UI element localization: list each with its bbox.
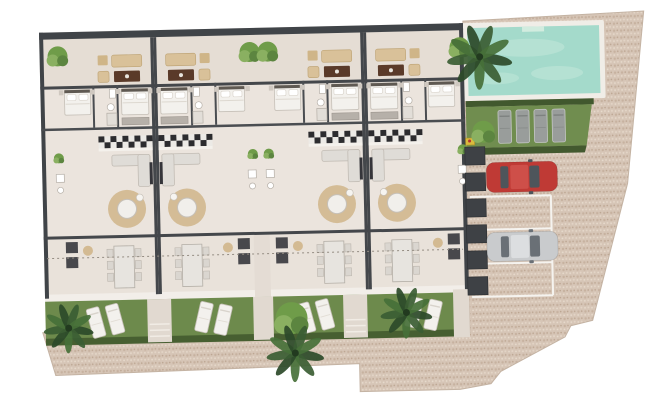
nightstand bbox=[269, 85, 274, 90]
dining-chair bbox=[203, 247, 209, 255]
nightstand bbox=[424, 82, 429, 87]
bed-pillow bbox=[277, 90, 286, 96]
bed-duvet-fold bbox=[162, 101, 187, 102]
kitchen-counter-cell bbox=[176, 141, 182, 147]
kitchen-counter-cell bbox=[200, 140, 206, 146]
nightstand bbox=[148, 88, 153, 93]
dining-chair bbox=[107, 261, 113, 269]
red-car-mirror bbox=[529, 191, 534, 194]
bbq-unit bbox=[238, 253, 250, 264]
floor-plan-canvas bbox=[0, 0, 660, 410]
white-car-rear-glass bbox=[501, 236, 509, 257]
dining-chair bbox=[413, 242, 419, 250]
dining-chair bbox=[317, 268, 323, 276]
dining-chair bbox=[135, 249, 141, 257]
white-car-roof bbox=[511, 235, 530, 258]
garden-path bbox=[453, 289, 470, 337]
wardrobe bbox=[161, 116, 188, 124]
terrace-armchair bbox=[308, 66, 319, 77]
bed-pillow bbox=[79, 94, 88, 100]
kitchen-counter-cell bbox=[374, 130, 380, 136]
kitchen-counter-cell bbox=[170, 135, 176, 141]
kitchen-counter-cell bbox=[356, 130, 362, 136]
dining-chair bbox=[413, 254, 419, 262]
kitchen-counter-cell bbox=[350, 137, 356, 143]
bed bbox=[274, 85, 301, 111]
kitchen-counter-cell bbox=[194, 134, 200, 140]
kitchen-counter-cell bbox=[134, 136, 140, 142]
dining-table bbox=[324, 241, 345, 283]
bed-mattress bbox=[218, 86, 245, 112]
dining-chair bbox=[175, 272, 181, 280]
nightstand bbox=[358, 83, 363, 88]
dining-chair bbox=[345, 256, 351, 264]
dining-chair bbox=[385, 243, 391, 251]
dining-table bbox=[114, 246, 135, 288]
kitchen-counter-cell bbox=[116, 136, 122, 142]
shower bbox=[403, 106, 413, 118]
dining-table bbox=[392, 239, 413, 281]
kitchen-counter-cell bbox=[98, 136, 104, 142]
terrace-sofa bbox=[375, 48, 405, 61]
dining-chair bbox=[317, 244, 323, 252]
tv-unit bbox=[159, 162, 162, 184]
kitchen-counter-cell bbox=[332, 131, 338, 137]
utility-basin bbox=[249, 183, 255, 189]
utility-fixture bbox=[458, 165, 466, 173]
bbq-unit bbox=[448, 233, 460, 244]
kitchen-counter bbox=[98, 135, 152, 148]
kitchen-counter-cell bbox=[326, 137, 332, 143]
terrace-side-table bbox=[307, 50, 317, 60]
storage-box bbox=[466, 199, 486, 217]
nightstand bbox=[188, 87, 193, 92]
kitchen-counter-cell bbox=[320, 137, 326, 143]
wardrobe bbox=[332, 113, 359, 121]
kitchen-counter-cell bbox=[344, 131, 350, 137]
kitchen-counter-cell bbox=[206, 134, 212, 140]
bbq-unit bbox=[66, 242, 78, 253]
bed-mattress bbox=[428, 81, 455, 107]
terrace-armchair bbox=[98, 71, 109, 82]
kitchen-counter-cell bbox=[398, 136, 404, 142]
white-car bbox=[487, 229, 559, 265]
side-passage bbox=[254, 235, 271, 297]
bath-sink bbox=[193, 87, 199, 96]
kitchen-counter-cell bbox=[158, 135, 164, 141]
bed-pillow bbox=[136, 93, 146, 99]
kitchen-counter-cell bbox=[200, 134, 206, 140]
nightstand bbox=[326, 84, 331, 89]
kitchen-counter-cell bbox=[380, 130, 386, 136]
bed bbox=[428, 81, 455, 107]
red-car-windshield bbox=[529, 165, 539, 187]
kitchen-counter-cell bbox=[111, 142, 117, 148]
kitchen-counter-cell bbox=[165, 141, 171, 147]
nightstand bbox=[300, 85, 305, 90]
kitchen-counter-cell bbox=[176, 135, 182, 141]
bed-duvet-fold bbox=[66, 104, 90, 105]
scene-root bbox=[36, 11, 652, 399]
living-sofa-chaise bbox=[138, 154, 151, 186]
dining-chair bbox=[345, 268, 351, 276]
kitchen-counter-cell bbox=[129, 142, 135, 148]
kitchen-counter-cell bbox=[105, 142, 111, 148]
wardrobe bbox=[371, 112, 398, 120]
round-lounge-chair-seat bbox=[117, 199, 136, 218]
tv-unit bbox=[369, 157, 372, 179]
kitchen-counter-cell bbox=[159, 141, 165, 147]
kitchen-counter-cell bbox=[326, 131, 332, 137]
kitchen-counter-cell bbox=[386, 136, 392, 142]
bed bbox=[64, 90, 91, 116]
bath-sink bbox=[319, 84, 325, 93]
nightstand bbox=[245, 86, 250, 91]
bath-sink bbox=[403, 82, 409, 91]
kitchen-counter-cell bbox=[188, 134, 194, 140]
bed-duvet-fold bbox=[220, 100, 244, 101]
kitchen-counter-cell bbox=[164, 135, 170, 141]
dining-chair bbox=[345, 244, 351, 252]
dining-chair bbox=[135, 273, 141, 281]
dining-chair bbox=[413, 266, 419, 274]
bed-pillow bbox=[443, 86, 452, 92]
bed-pillow bbox=[163, 92, 173, 98]
kitchen-counter-cell bbox=[314, 131, 320, 137]
toilet bbox=[195, 102, 202, 109]
bed bbox=[160, 87, 188, 114]
kitchen-counter-cell bbox=[314, 137, 320, 143]
bed-mattress bbox=[160, 87, 188, 114]
bbq-unit bbox=[276, 237, 288, 248]
kitchen-counter-cell bbox=[171, 141, 177, 147]
kitchen-counter-cell bbox=[392, 130, 398, 136]
kitchen-counter-cell bbox=[380, 136, 386, 142]
kitchen-counter-cell bbox=[182, 134, 188, 140]
shower bbox=[317, 108, 327, 120]
bed-headboard bbox=[274, 85, 300, 89]
tv-unit bbox=[149, 162, 152, 184]
kitchen-counter-cell bbox=[146, 135, 152, 141]
bed-mattress bbox=[121, 88, 149, 115]
dining-chair bbox=[175, 248, 181, 256]
kitchen-counter-cell bbox=[135, 142, 141, 148]
nightstand bbox=[90, 90, 95, 95]
bed-pillow bbox=[67, 94, 76, 100]
lawn-lounger-base bbox=[534, 109, 548, 142]
utility-basin bbox=[58, 187, 64, 193]
bed bbox=[331, 84, 359, 111]
bed-headboard bbox=[160, 87, 187, 91]
terrace-side-table bbox=[409, 48, 419, 58]
kitchen-counter-cell bbox=[206, 140, 212, 146]
bed-pillow bbox=[385, 87, 395, 93]
nightstand bbox=[366, 83, 371, 88]
kitchen-counter-cell bbox=[350, 131, 356, 137]
bed-mattress bbox=[64, 90, 91, 116]
nightstand bbox=[398, 83, 403, 88]
kitchen-counter-cell bbox=[147, 141, 153, 147]
round-lounge-chair-side-table bbox=[136, 194, 143, 201]
bed-pillow bbox=[124, 93, 134, 99]
kitchen-counter-cell bbox=[128, 136, 134, 142]
dining-chair bbox=[203, 259, 209, 267]
garden-path bbox=[253, 297, 274, 340]
kitchen-counter-cell bbox=[308, 132, 314, 138]
kitchen-counter-cell bbox=[416, 129, 422, 135]
bed-headboard bbox=[121, 88, 148, 92]
bed-mattress bbox=[370, 83, 398, 110]
round-lounge-chair-side-table bbox=[380, 188, 387, 195]
pool-step bbox=[522, 26, 544, 31]
red-car-roof bbox=[510, 165, 529, 189]
lawn-lounger bbox=[498, 110, 512, 143]
toilet bbox=[405, 97, 412, 104]
nightstand bbox=[214, 87, 219, 92]
nightstand bbox=[59, 90, 64, 95]
storage-box bbox=[465, 173, 485, 191]
terrace-sofa bbox=[166, 53, 196, 66]
dining-chair bbox=[107, 249, 113, 257]
terrace-armchair bbox=[409, 64, 420, 75]
kitchen-counter-cell bbox=[368, 136, 374, 142]
lawn-lounger-base bbox=[552, 109, 566, 142]
kitchen-counter bbox=[368, 129, 422, 142]
bed bbox=[121, 88, 149, 115]
nightstand bbox=[116, 89, 121, 94]
kitchen-counter-cell bbox=[320, 131, 326, 137]
kitchen-counter-cell bbox=[410, 129, 416, 135]
bed-pillow bbox=[175, 92, 185, 98]
bed-pillow bbox=[373, 88, 383, 94]
utility-fixture bbox=[56, 174, 64, 182]
dining-chair bbox=[107, 273, 113, 281]
red-car bbox=[486, 159, 558, 196]
bed-pillow bbox=[289, 89, 298, 95]
white-car-mirror bbox=[529, 260, 534, 263]
site-plan-svg bbox=[0, 0, 660, 410]
lawn-lounger-base bbox=[498, 110, 512, 143]
utility-fixture bbox=[248, 170, 256, 178]
bed-headboard bbox=[218, 86, 244, 90]
bed-pillow bbox=[221, 91, 230, 97]
kitchen-counter-cell bbox=[338, 137, 344, 143]
round-lounge-chair-side-table bbox=[170, 193, 177, 200]
toilet bbox=[317, 99, 324, 106]
living-sofa-chaise bbox=[372, 149, 385, 181]
kitchen-counter-cell bbox=[404, 129, 410, 135]
kitchen-counter-cell bbox=[344, 137, 350, 143]
kitchen-counter bbox=[158, 134, 212, 147]
kitchen-counter-cell bbox=[398, 130, 404, 136]
kitchen-counter bbox=[308, 130, 362, 143]
bed bbox=[218, 86, 245, 112]
white-car-mirror bbox=[529, 229, 534, 232]
terrace-sofa bbox=[321, 50, 351, 63]
bed-duvet-fold bbox=[276, 99, 300, 100]
kitchen-counter-cell bbox=[392, 136, 398, 142]
round-lounge-chair-seat bbox=[177, 198, 196, 217]
utility-fixture bbox=[266, 169, 274, 177]
storage-box bbox=[467, 251, 487, 269]
bbq-unit bbox=[448, 248, 460, 259]
wardrobe bbox=[122, 117, 149, 125]
kitchen-counter-cell bbox=[188, 140, 194, 146]
bed-mattress bbox=[331, 84, 359, 111]
dining-chair bbox=[385, 267, 391, 275]
terrace-side-table bbox=[98, 55, 108, 65]
kitchen-counter-cell bbox=[194, 140, 200, 146]
kitchen-counter-cell bbox=[117, 142, 123, 148]
plan-rotation-group bbox=[36, 11, 652, 399]
kitchen-counter-cell bbox=[140, 135, 146, 141]
kitchen-counter-cell bbox=[99, 142, 105, 148]
nightstand bbox=[156, 88, 161, 93]
utility-basin bbox=[459, 178, 465, 184]
kitchen-counter-cell bbox=[110, 136, 116, 142]
round-lounge-chair-seat bbox=[327, 194, 346, 213]
toilet bbox=[107, 104, 114, 111]
round-lounge-chair-seat bbox=[387, 193, 406, 212]
bed-mattress bbox=[274, 85, 301, 111]
kitchen-counter-cell bbox=[141, 141, 147, 147]
kitchen-counter-cell bbox=[338, 131, 344, 137]
bed-headboard bbox=[64, 90, 90, 94]
bbq-unit bbox=[238, 238, 250, 249]
kitchen-counter-cell bbox=[410, 135, 416, 141]
bed-headboard bbox=[331, 84, 358, 88]
storage-box bbox=[465, 147, 485, 165]
kitchen-counter-cell bbox=[374, 136, 380, 142]
living-sofa-chaise bbox=[162, 154, 175, 186]
storage-box bbox=[466, 225, 486, 243]
terrace-armchair bbox=[199, 69, 210, 80]
bed-pillow bbox=[346, 88, 356, 94]
lawn-lounger bbox=[534, 109, 548, 142]
kitchen-counter-cell bbox=[404, 135, 410, 141]
lawn-lounger-base bbox=[516, 110, 530, 143]
bed-headboard bbox=[370, 83, 397, 87]
terrace-sofa bbox=[112, 54, 142, 67]
kitchen-counter-cell bbox=[122, 136, 128, 142]
bed-duvet-fold bbox=[333, 98, 358, 99]
shower bbox=[107, 113, 117, 125]
kitchen-counter-cell bbox=[308, 138, 314, 144]
storage-box bbox=[468, 277, 488, 295]
terrace-side-table bbox=[200, 53, 210, 63]
dining-table bbox=[182, 244, 203, 286]
round-lounge-chair-side-table bbox=[346, 189, 353, 196]
kitchen-counter-cell bbox=[104, 136, 110, 142]
bed-pillow bbox=[233, 91, 242, 97]
dining-chair bbox=[317, 256, 323, 264]
kitchen-counter-cell bbox=[123, 142, 129, 148]
utility-basin bbox=[267, 183, 273, 189]
kitchen-counter-cell bbox=[332, 137, 338, 143]
dining-chair bbox=[203, 271, 209, 279]
bed-headboard bbox=[428, 81, 454, 85]
bed-duvet-fold bbox=[123, 102, 148, 103]
red-car-mirror bbox=[528, 159, 533, 162]
white-car-windshield bbox=[530, 235, 540, 256]
bed-pillow bbox=[334, 88, 344, 94]
tv-unit bbox=[359, 157, 362, 179]
lawn-lounger bbox=[552, 109, 566, 142]
kitchen-counter-cell bbox=[368, 130, 374, 136]
lawn-lounger bbox=[516, 110, 530, 143]
dining-chair bbox=[385, 255, 391, 263]
bath-sink bbox=[109, 89, 115, 98]
kitchen-counter-cell bbox=[386, 130, 392, 136]
red-car-rear-glass bbox=[500, 166, 508, 188]
bed-duvet-fold bbox=[372, 97, 397, 98]
kitchen-counter-cell bbox=[356, 136, 362, 142]
bed bbox=[370, 83, 398, 110]
shower bbox=[193, 111, 203, 123]
dining-chair bbox=[175, 260, 181, 268]
kitchen-counter-cell bbox=[182, 140, 188, 146]
dining-chair bbox=[135, 261, 141, 269]
kitchen-counter-cell bbox=[416, 135, 422, 141]
living-sofa-chaise bbox=[348, 150, 361, 182]
bed-duvet-fold bbox=[430, 95, 454, 96]
bed-pillow bbox=[431, 86, 440, 92]
